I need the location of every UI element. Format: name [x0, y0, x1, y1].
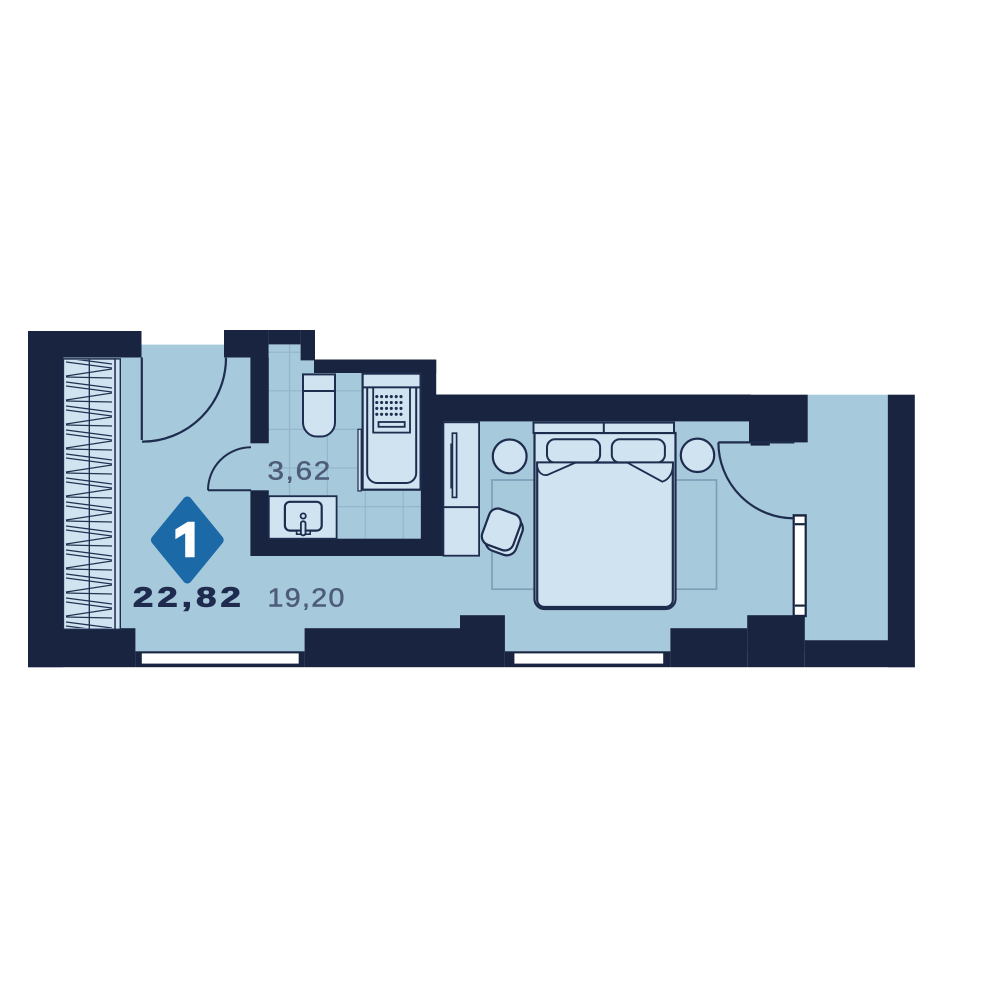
svg-text:22,82: 22,82 — [133, 581, 245, 612]
svg-text:19,20: 19,20 — [268, 583, 346, 612]
svg-text:3,62: 3,62 — [268, 456, 332, 485]
